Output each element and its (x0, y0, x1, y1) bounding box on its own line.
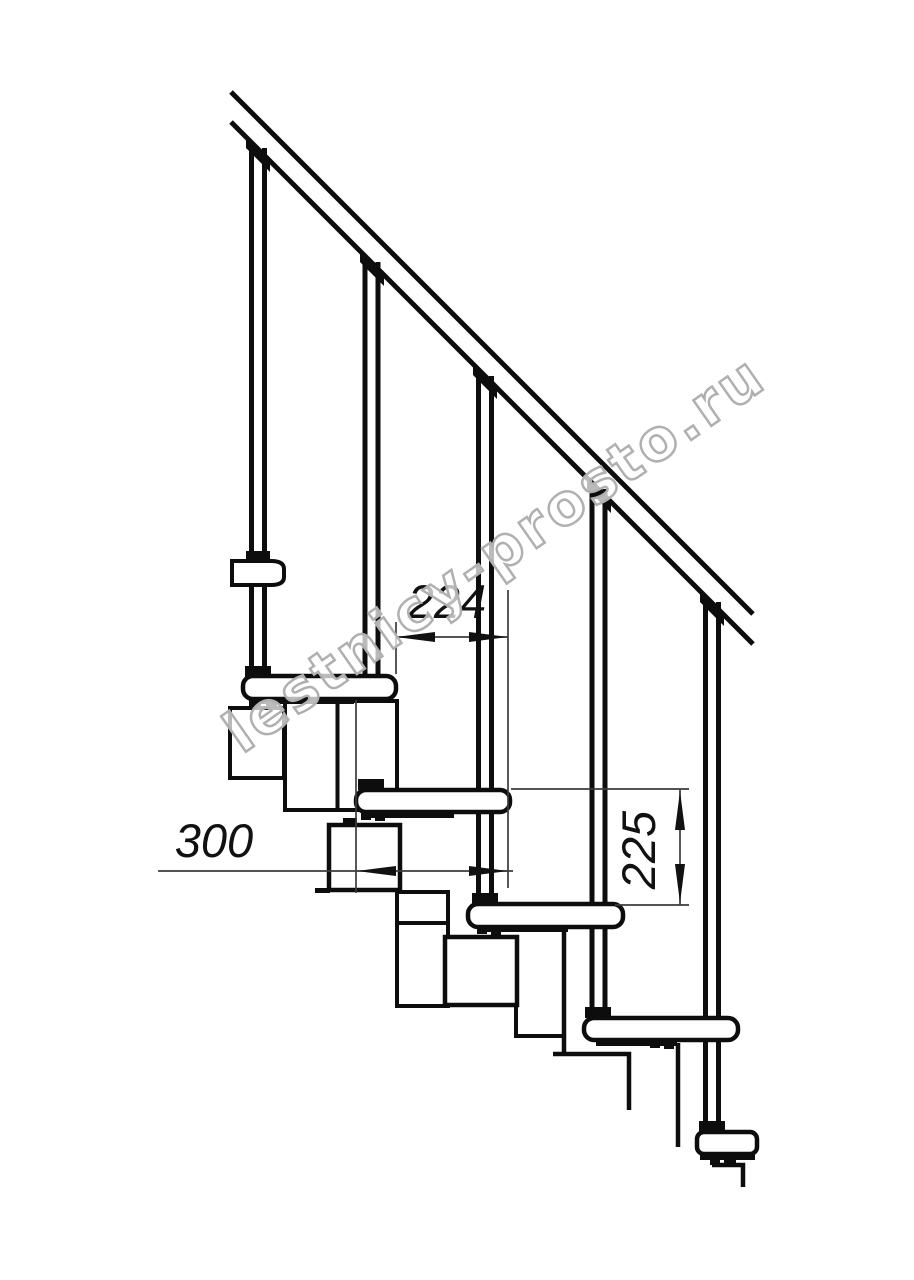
upper-flight-step-end-view (232, 561, 284, 585)
lower-flight-step-line (712, 1165, 743, 1187)
tread-3 (468, 904, 623, 927)
connector-nub (361, 812, 371, 820)
dim-arrow-up-icon (675, 791, 685, 830)
dimension-225: 225 (511, 789, 689, 905)
dim-arrow-down-icon (675, 864, 685, 903)
baluster-base-cap (358, 779, 384, 790)
baluster-base-cap (245, 666, 271, 677)
connector-nub (477, 926, 487, 934)
baluster-base-cap (246, 551, 270, 562)
staircase-drawing: 224 300 225 (0, 0, 914, 1280)
dimension-value: 224 (407, 575, 486, 628)
baluster-base-cap (699, 1121, 725, 1132)
tread-4 (584, 1018, 738, 1040)
module-step-line (516, 1005, 564, 1036)
connector-nub (650, 1040, 660, 1048)
baluster-base-cap (585, 1007, 611, 1018)
dim-arrow-left-icon (396, 632, 435, 642)
dimension-value: 225 (612, 810, 665, 890)
baluster-3 (473, 364, 497, 898)
under-tread-strip (700, 1153, 755, 1160)
baluster-base-cap (472, 893, 498, 904)
module-step-line (553, 1054, 629, 1110)
tread-2 (356, 790, 510, 812)
connector-nub (343, 818, 357, 826)
connector-nub (491, 927, 501, 935)
baluster-4 (587, 478, 611, 1012)
dim-arrow-right-icon (469, 866, 508, 876)
baluster-5 (700, 591, 724, 1126)
dimension-value: 300 (175, 814, 253, 867)
upper-flight-module-end-view (230, 708, 284, 778)
module-box (329, 825, 400, 890)
connector-nub (266, 698, 277, 707)
dim-arrow-right-icon (469, 632, 508, 642)
connector-nub (664, 1041, 674, 1049)
connector-nub (375, 813, 385, 821)
tread-5-end-view (697, 1132, 757, 1154)
module-box (397, 892, 448, 1006)
module-box (445, 937, 517, 1005)
tread-1 (243, 676, 396, 699)
staircase-drawing-canvas: 224 300 225 lestnicy-prosto.ru (0, 0, 914, 1280)
connector-nub (249, 697, 261, 707)
baluster-1 (246, 137, 270, 670)
